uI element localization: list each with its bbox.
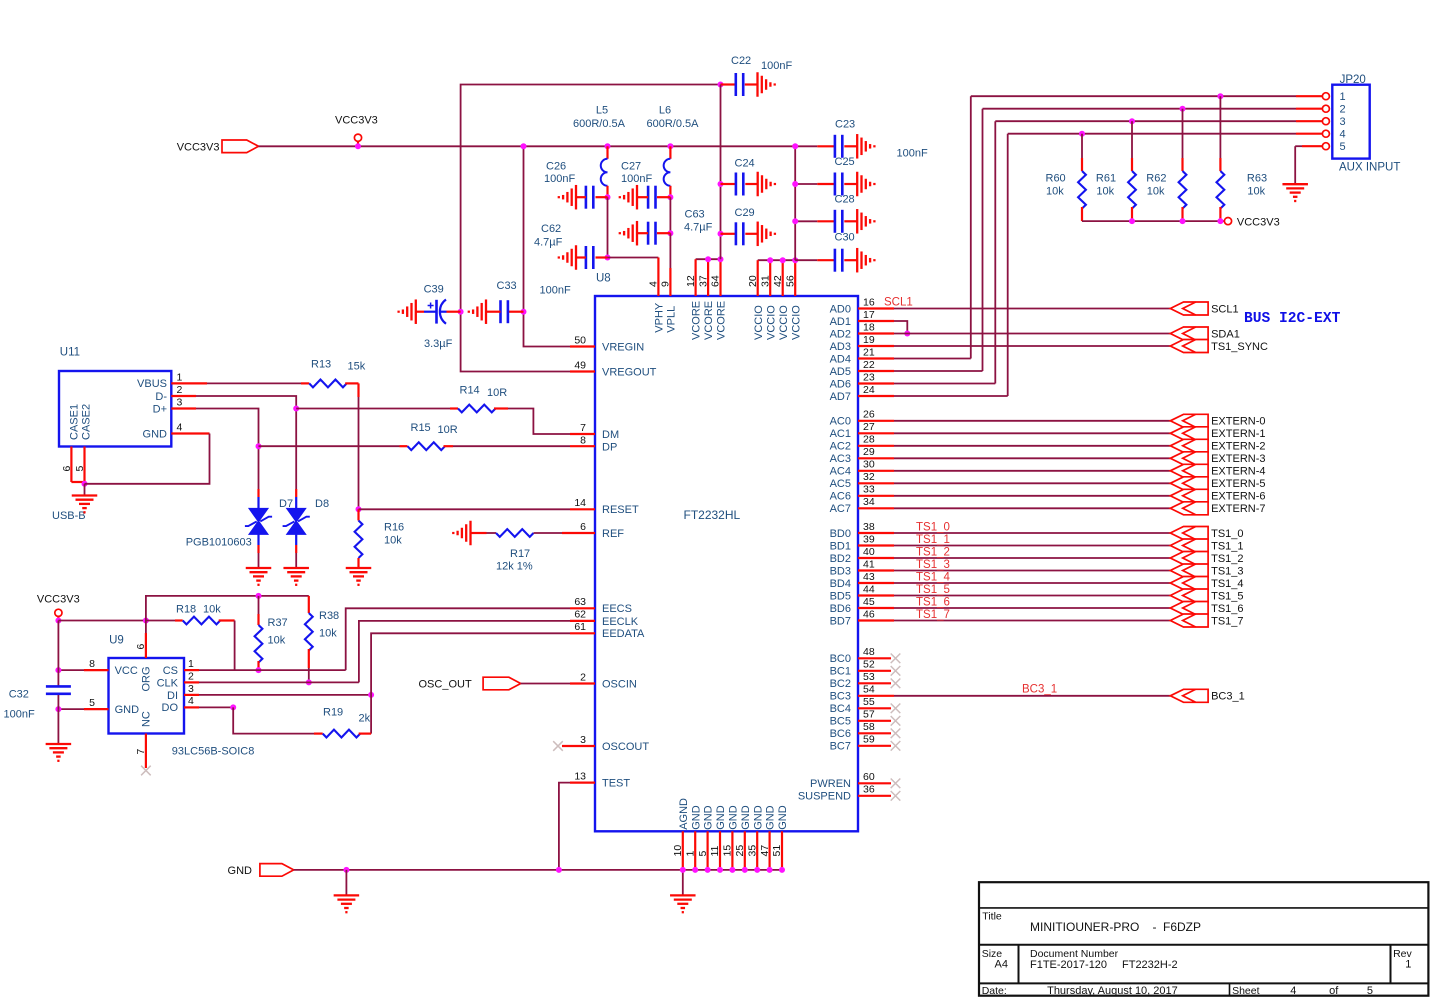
svg-text:8: 8 [580,434,586,446]
svg-text:AD3: AD3 [830,341,851,353]
svg-text:3.3µF: 3.3µF [424,338,453,350]
svg-text:VCC3V3: VCC3V3 [335,115,378,127]
svg-text:ORG: ORG [141,666,153,691]
svg-text:VCC: VCC [115,665,138,677]
svg-text:39: 39 [863,533,875,545]
svg-text:BUS I2C-EXT: BUS I2C-EXT [1244,311,1341,327]
svg-text:CASE1: CASE1 [68,404,80,440]
svg-text:DP: DP [602,441,617,453]
svg-text:VCCIO: VCCIO [778,305,790,340]
svg-text:VPHY: VPHY [654,302,666,333]
svg-text:R15: R15 [411,422,431,434]
svg-text:OSC_OUT: OSC_OUT [419,679,472,691]
svg-text:TS1_0: TS1_0 [1211,528,1243,540]
svg-text:GND: GND [740,805,752,830]
svg-text:40: 40 [863,546,875,558]
svg-text:37: 37 [697,275,709,287]
svg-text:TS1_7: TS1_7 [916,609,950,621]
svg-text:17: 17 [863,309,875,321]
svg-text:SDA1: SDA1 [1211,328,1240,340]
svg-text:VBUS: VBUS [137,378,167,390]
svg-text:EXTERN-5: EXTERN-5 [1211,478,1265,490]
svg-text:RESET: RESET [602,504,639,516]
svg-text:1: 1 [684,851,696,857]
svg-text:59: 59 [863,734,875,746]
svg-text:10k: 10k [1147,186,1165,198]
svg-text:8: 8 [89,658,95,670]
svg-text:45: 45 [863,596,875,608]
svg-text:43: 43 [863,571,875,583]
svg-text:50: 50 [574,334,586,346]
svg-text:AC4: AC4 [830,466,851,478]
svg-text:SUSPEND: SUSPEND [798,791,851,803]
svg-text:AD0: AD0 [830,303,851,315]
svg-text:9: 9 [660,281,672,287]
svg-text:BC0: BC0 [830,653,851,665]
svg-text:5: 5 [89,697,95,709]
svg-text:FT2232H-2: FT2232H-2 [1122,959,1178,971]
svg-text:Sheet: Sheet [1232,985,1260,997]
svg-text:TS1_1: TS1_1 [916,534,950,546]
svg-text:BC1: BC1 [830,666,851,678]
svg-text:F1TE-2017-120: F1TE-2017-120 [1030,959,1107,971]
svg-text:EXTERN-4: EXTERN-4 [1211,466,1265,478]
svg-text:4.7µF: 4.7µF [534,237,563,249]
svg-text:41: 41 [863,558,875,570]
svg-text:VCCIO: VCCIO [790,305,802,340]
svg-text:R61: R61 [1096,173,1116,185]
svg-text:R37: R37 [268,617,288,629]
svg-text:C26: C26 [546,161,566,173]
svg-text:NC: NC [141,711,153,727]
svg-text:D-: D- [155,391,167,403]
svg-text:DO: DO [162,702,179,714]
svg-text:A4: A4 [995,959,1008,971]
svg-text:TS1_6: TS1_6 [916,597,950,609]
svg-text:SCL1: SCL1 [884,297,913,309]
svg-text:C62: C62 [541,223,561,235]
svg-text:R19: R19 [323,707,343,719]
svg-text:FT2232HL: FT2232HL [684,508,741,522]
svg-text:18: 18 [863,321,875,333]
svg-text:C23: C23 [835,119,855,131]
svg-text:10R: 10R [487,387,507,399]
svg-text:3: 3 [580,734,586,746]
svg-text:44: 44 [863,583,875,595]
svg-text:GND: GND [228,865,253,877]
svg-text:OSCIN: OSCIN [602,678,637,690]
svg-text:VCORE: VCORE [691,301,703,340]
svg-text:TS1_3: TS1_3 [1211,565,1243,577]
svg-text:VREGOUT: VREGOUT [602,366,657,378]
svg-text:EXTERN-0: EXTERN-0 [1211,416,1265,428]
svg-text:4: 4 [177,422,183,434]
svg-text:USB-B: USB-B [52,510,86,522]
svg-text:BC6: BC6 [830,728,851,740]
svg-text:10k: 10k [203,604,221,616]
svg-text:4.7µF: 4.7µF [684,222,713,234]
svg-text:10R: 10R [438,424,458,436]
svg-text:C33: C33 [497,280,517,292]
svg-text:SCL1: SCL1 [1211,303,1239,315]
svg-text:34: 34 [863,496,875,508]
svg-text:5: 5 [1340,141,1346,153]
svg-text:VCORE: VCORE [716,301,728,340]
svg-text:10k: 10k [384,535,402,547]
svg-text:64: 64 [710,275,722,287]
svg-text:CASE2: CASE2 [80,404,92,440]
svg-text:EXTERN-2: EXTERN-2 [1211,441,1265,453]
svg-text:100nF: 100nF [540,285,571,297]
svg-text:BD4: BD4 [830,578,851,590]
svg-text:C39: C39 [424,284,444,296]
svg-text:EXTERN-6: EXTERN-6 [1211,491,1265,503]
svg-text:TS1_4: TS1_4 [916,572,950,584]
svg-text:AD2: AD2 [830,328,851,340]
svg-text:4: 4 [1290,985,1296,997]
svg-text:58: 58 [863,721,875,733]
svg-text:GND: GND [703,805,715,830]
svg-text:56: 56 [784,275,796,287]
svg-text:DI: DI [167,690,178,702]
svg-text:31: 31 [759,275,771,287]
svg-text:AD6: AD6 [830,378,851,390]
svg-text:100nF: 100nF [897,148,928,160]
svg-text:55: 55 [863,696,875,708]
svg-text:3: 3 [1340,116,1346,128]
svg-text:AD1: AD1 [830,316,851,328]
svg-text:AC6: AC6 [830,491,851,503]
svg-text:10k: 10k [1046,186,1064,198]
svg-text:33: 33 [863,484,875,496]
svg-text:1: 1 [1340,91,1346,103]
svg-text:of: of [1329,985,1339,997]
svg-text:F6DZP: F6DZP [1163,920,1201,934]
svg-text:TS1_1: TS1_1 [1211,540,1243,552]
svg-text:GND: GND [115,704,140,716]
svg-text:BD0: BD0 [830,528,851,540]
svg-text:MINITIOUNER-PRO: MINITIOUNER-PRO [1030,920,1139,934]
svg-text:C27: C27 [621,161,641,173]
svg-text:PGB1010603: PGB1010603 [186,537,252,549]
svg-text:GND: GND [777,805,789,830]
svg-text:BD3: BD3 [830,565,851,577]
svg-text:EEDATA: EEDATA [602,628,645,640]
svg-text:CS: CS [163,665,178,677]
svg-text:TS1_3: TS1_3 [916,559,950,571]
svg-text:63: 63 [574,596,586,608]
svg-text:21: 21 [863,346,875,358]
svg-text:100nF: 100nF [4,709,35,721]
svg-text:1: 1 [1405,959,1411,971]
svg-text:AC5: AC5 [830,478,851,490]
svg-text:VREGIN: VREGIN [602,341,644,353]
svg-text:54: 54 [863,684,875,696]
svg-text:R16: R16 [384,522,404,534]
svg-text:BD2: BD2 [830,553,851,565]
svg-text:GND: GND [143,428,168,440]
svg-text:TS1_4: TS1_4 [1211,578,1243,590]
svg-text:TS1_6: TS1_6 [1211,603,1243,615]
svg-text:10k: 10k [268,635,286,647]
svg-text:100nF: 100nF [761,60,792,72]
svg-text:AUX INPUT: AUX INPUT [1339,162,1400,174]
svg-text:3: 3 [188,683,194,695]
svg-text:6: 6 [580,521,586,533]
svg-text:TS1_2: TS1_2 [1211,553,1243,565]
svg-text:600R/0.5A: 600R/0.5A [573,118,626,130]
svg-text:AGND: AGND [678,798,690,830]
svg-text:GND: GND [765,805,777,830]
svg-text:VCC3V3: VCC3V3 [1237,217,1280,229]
svg-text:BC4: BC4 [830,703,851,715]
svg-text:R13: R13 [311,359,331,371]
svg-text:11: 11 [709,845,721,856]
svg-text:AD7: AD7 [830,391,851,403]
svg-text:52: 52 [863,659,875,671]
svg-text:D7: D7 [279,498,293,510]
svg-text:-: - [1153,920,1157,934]
svg-text:TS1_7: TS1_7 [1211,615,1243,627]
svg-text:AC1: AC1 [830,428,851,440]
svg-text:AD5: AD5 [830,366,851,378]
svg-text:7: 7 [580,422,586,434]
svg-text:C28: C28 [835,194,855,206]
svg-text:10k: 10k [1096,186,1114,198]
svg-text:TEST: TEST [602,778,630,790]
svg-text:32: 32 [863,471,875,483]
svg-text:BD5: BD5 [830,590,851,602]
svg-text:PWREN: PWREN [810,778,851,790]
svg-text:Title: Title [982,911,1002,923]
svg-text:36: 36 [863,784,875,796]
svg-text:R14: R14 [460,385,480,397]
svg-text:TS1_0: TS1_0 [916,522,950,534]
svg-text:2: 2 [1340,104,1346,116]
svg-text:AC7: AC7 [830,503,851,515]
svg-text:VCCIO: VCCIO [765,305,777,340]
svg-text:93LC56B-SOIC8: 93LC56B-SOIC8 [172,746,255,758]
svg-text:GND: GND [715,805,727,830]
svg-text:REF: REF [602,528,624,540]
svg-text:VCC3V3: VCC3V3 [177,142,220,154]
svg-text:1: 1 [177,371,183,383]
svg-text:100nF: 100nF [621,173,652,185]
svg-text:4: 4 [648,281,660,287]
svg-text:24: 24 [863,384,875,396]
svg-text:10k: 10k [319,628,337,640]
svg-text:46: 46 [863,608,875,620]
svg-text:23: 23 [863,371,875,383]
svg-text:C24: C24 [735,158,755,170]
svg-text:Date:: Date: [982,985,1007,997]
svg-text:D8: D8 [315,498,329,510]
svg-text:12k 1%: 12k 1% [496,561,533,573]
svg-text:600R/0.5A: 600R/0.5A [647,118,700,130]
svg-text:VCCIO: VCCIO [753,305,765,340]
svg-text:GND: GND [752,805,764,830]
svg-text:U11: U11 [60,347,80,359]
svg-text:U8: U8 [596,273,611,285]
svg-text:60: 60 [863,771,875,783]
svg-text:AD4: AD4 [830,353,851,365]
svg-text:DM: DM [602,429,619,441]
svg-text:BC3_1: BC3_1 [1211,691,1245,703]
svg-text:2k: 2k [359,713,371,725]
svg-text:10: 10 [672,845,684,857]
svg-text:C32: C32 [9,689,29,701]
svg-text:BC7: BC7 [830,741,851,753]
svg-text:TS1_5: TS1_5 [916,584,950,596]
svg-text:JP20: JP20 [1340,74,1366,86]
svg-text:3: 3 [177,397,183,409]
svg-text:4: 4 [188,695,194,707]
svg-text:BC3: BC3 [830,691,851,703]
svg-text:47: 47 [759,845,771,857]
svg-text:38: 38 [863,521,875,533]
svg-text:EECLK: EECLK [602,616,639,628]
svg-text:19: 19 [863,334,875,346]
svg-text:C29: C29 [735,207,755,219]
svg-text:4: 4 [1340,129,1346,141]
svg-text:OSCOUT: OSCOUT [602,741,649,753]
svg-text:AC3: AC3 [830,453,851,465]
svg-text:C22: C22 [731,55,751,67]
svg-text:2: 2 [580,671,586,683]
svg-text:61: 61 [574,621,586,633]
svg-text:26: 26 [863,409,875,421]
svg-text:BD6: BD6 [830,603,851,615]
svg-text:12: 12 [685,275,697,287]
svg-text:49: 49 [574,359,586,371]
svg-text:2: 2 [177,384,183,396]
svg-text:22: 22 [863,359,875,371]
svg-text:28: 28 [863,434,875,446]
svg-text:C30: C30 [835,232,855,244]
svg-text:GND: GND [690,805,702,830]
svg-text:VPLL: VPLL [666,306,678,333]
svg-text:25: 25 [734,845,746,857]
svg-text:10k: 10k [1247,186,1265,198]
svg-text:16: 16 [863,296,875,308]
svg-text:BC3_1: BC3_1 [1022,684,1057,696]
svg-text:30: 30 [863,459,875,471]
svg-text:L5: L5 [596,105,608,117]
svg-text:100nF: 100nF [544,173,575,185]
svg-text:R62: R62 [1146,173,1166,185]
svg-text:14: 14 [574,497,586,509]
svg-text:29: 29 [863,446,875,458]
svg-text:C63: C63 [685,209,705,221]
svg-text:35: 35 [746,845,758,857]
svg-text:48: 48 [863,646,875,658]
svg-text:VCORE: VCORE [703,301,715,340]
svg-text:13: 13 [574,770,586,782]
svg-text:TS1_2: TS1_2 [916,547,950,559]
svg-text:1: 1 [188,658,194,670]
svg-text:R60: R60 [1046,173,1066,185]
svg-text:2: 2 [188,670,194,682]
svg-text:TS1_SYNC: TS1_SYNC [1211,341,1268,353]
svg-text:GND: GND [728,805,740,830]
svg-text:27: 27 [863,421,875,433]
svg-text:CLK: CLK [157,677,179,689]
svg-text:Thursday, August 10, 2017: Thursday, August 10, 2017 [1047,985,1178,997]
svg-text:42: 42 [772,275,784,287]
svg-text:VCC3V3: VCC3V3 [37,594,80,606]
svg-text:62: 62 [574,609,586,621]
svg-text:51: 51 [771,845,783,857]
svg-text:R18: R18 [176,604,196,616]
svg-text:EXTERN-7: EXTERN-7 [1211,503,1265,515]
svg-text:R17: R17 [510,548,530,560]
svg-text:BC5: BC5 [830,716,851,728]
svg-text:53: 53 [863,671,875,683]
svg-text:R63: R63 [1247,173,1267,185]
svg-text:U9: U9 [109,635,124,647]
svg-text:5: 5 [697,851,709,857]
svg-text:15: 15 [722,845,734,857]
svg-text:BD1: BD1 [830,540,851,552]
svg-text:EECS: EECS [602,603,632,615]
svg-text:57: 57 [863,709,875,721]
svg-text:TS1_5: TS1_5 [1211,590,1243,602]
svg-text:L6: L6 [659,105,671,117]
svg-text:EXTERN-3: EXTERN-3 [1211,453,1265,465]
svg-text:C25: C25 [835,156,855,168]
svg-text:AC0: AC0 [830,416,851,428]
svg-text:BC2: BC2 [830,678,851,690]
svg-text:D+: D+ [153,403,167,415]
svg-text:AC2: AC2 [830,441,851,453]
svg-text:EXTERN-1: EXTERN-1 [1211,428,1265,440]
svg-text:BD7: BD7 [830,615,851,627]
svg-text:5: 5 [1367,985,1373,997]
svg-text:15k: 15k [348,361,366,373]
svg-text:20: 20 [747,275,759,287]
svg-text:R38: R38 [319,610,339,622]
